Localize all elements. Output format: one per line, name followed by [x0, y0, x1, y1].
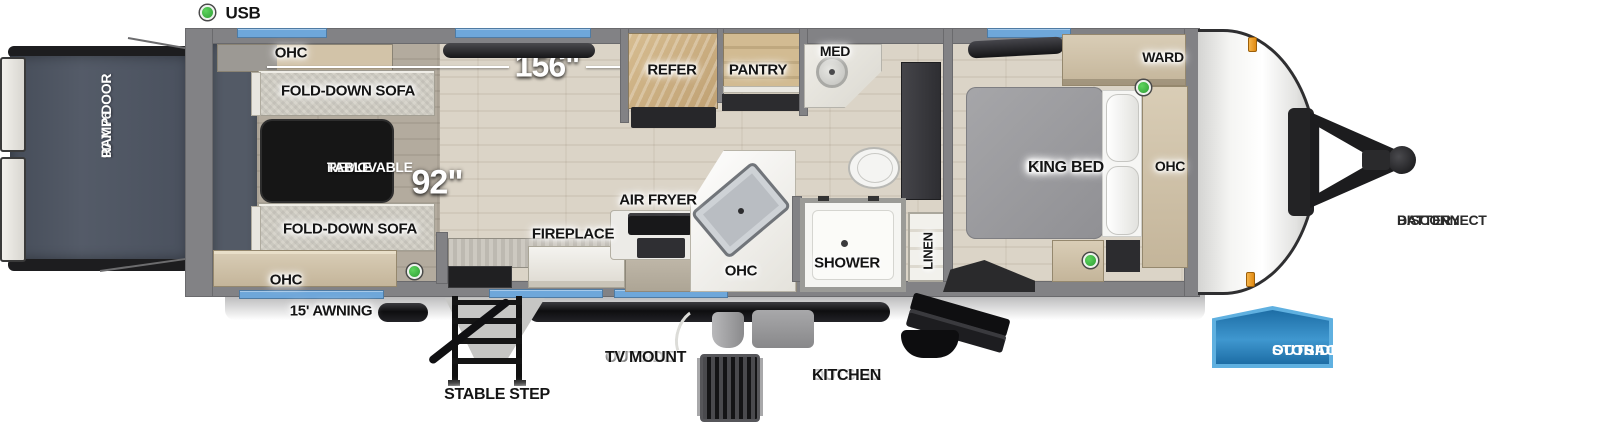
bedroom-ohc-label: OHC	[1155, 159, 1185, 173]
ward-label: WARD	[1142, 50, 1184, 64]
window-top-garage	[238, 29, 326, 37]
awning-strip-mid	[490, 290, 602, 297]
clearance-marker-top	[1248, 37, 1257, 52]
kitchen-counter-inset	[448, 266, 512, 288]
med-label: MED	[820, 44, 850, 58]
linen-label: LINEN	[921, 232, 934, 270]
air-fryer-drawer	[637, 238, 685, 258]
awning-roller-short	[378, 303, 428, 322]
garage-ohc-bottom-cabinet	[213, 250, 397, 287]
entry-step-foot	[901, 330, 959, 358]
dim-156-line-left	[267, 66, 509, 68]
hitch-jack	[1362, 150, 1390, 170]
dim-92-label: 92"	[412, 164, 463, 203]
pantry-label: PANTRY	[729, 62, 787, 77]
sofa-top-armrest	[251, 72, 261, 116]
wall-stub-kitchen-left	[436, 232, 448, 284]
pantry-front-edge	[723, 86, 800, 93]
fold-down-sofa-bottom-label: FOLD-DOWN SOFA	[283, 221, 417, 236]
usb-legend-label: USB	[226, 4, 261, 21]
shower-label: SHOWER	[814, 255, 880, 270]
stable-step-label: STABLE STEP	[444, 387, 550, 403]
usb-dot-wardrobe	[1136, 80, 1151, 95]
awning-strip-rear	[240, 291, 383, 298]
under-body-cylinder	[712, 312, 744, 348]
rear-wall	[185, 28, 213, 297]
step-rung-1	[452, 300, 522, 305]
bedroom-ohc-cabinet	[1142, 86, 1188, 268]
step-rung-4	[452, 358, 522, 364]
outside-kitchen-griddle	[700, 354, 760, 422]
under-body-tank	[752, 310, 814, 348]
bath-sink-drain	[829, 69, 835, 75]
shower-hinge-right	[868, 196, 879, 201]
awning-label: 15' AWNING	[290, 303, 373, 318]
shower-drain	[841, 240, 848, 247]
rear-bumper-cap-top	[0, 57, 26, 152]
fold-down-sofa-top-label: FOLD-DOWN SOFA	[281, 83, 415, 98]
air-fryer-label: AIR FRYER	[619, 192, 697, 207]
pantry-base	[722, 94, 802, 111]
refrigerator-base	[631, 107, 716, 128]
pillow-top	[1106, 94, 1139, 162]
window-top-bedroom	[988, 29, 1070, 37]
sofa-bottom-armrest	[251, 206, 261, 254]
window-top-living	[456, 29, 590, 37]
usb-dot-nightstand	[1083, 253, 1098, 268]
fireplace-label: FIREPLACE	[532, 226, 614, 241]
garage-ohc-top-label: OHC	[275, 45, 307, 60]
pillow-bottom	[1106, 166, 1139, 235]
hitch-coupler	[1388, 146, 1416, 174]
tv-mount-bar	[443, 43, 595, 58]
refer-label: REFER	[647, 62, 696, 77]
kitchen-ohc-label: OHC	[725, 263, 757, 278]
usb-legend-dot	[200, 5, 215, 20]
air-fryer-cooktop	[628, 213, 692, 235]
bedroom-dark-cabinet	[1106, 240, 1140, 272]
rv-floorplan-diagram: 90 X 76 RAMP DOOR OHC FOLD-DOWN SOFA REM…	[0, 0, 1600, 433]
clearance-marker-bottom	[1246, 272, 1255, 287]
toilet-seat	[857, 153, 893, 183]
sink-drain	[738, 208, 744, 214]
bath-door-panel	[901, 62, 941, 200]
bedroom-wall	[943, 28, 953, 282]
shower-hinge-left	[818, 196, 829, 201]
garage-ohc-bottom-label: OHC	[270, 272, 302, 287]
usb-dot-garage	[407, 264, 422, 279]
rear-bumper-cap-bottom	[0, 157, 26, 262]
